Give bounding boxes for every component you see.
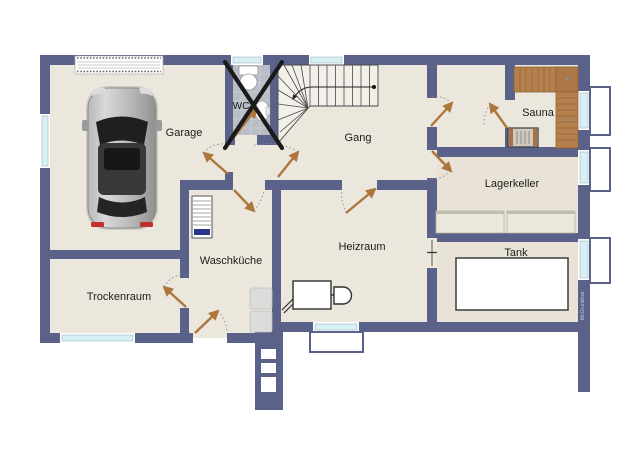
label-heizraum: Heizraum xyxy=(338,241,385,253)
wall-lager-tank xyxy=(437,233,578,242)
wall-bottom-left2 xyxy=(227,333,258,343)
laundry-unit-icon xyxy=(192,196,212,238)
light-well-lagerkeller xyxy=(590,148,610,191)
label-trockenraum: Trockenraum xyxy=(87,291,151,303)
tank-icon xyxy=(456,258,568,310)
label-lagerkeller: Lagerkeller xyxy=(485,178,540,190)
wall-waschkueche-left xyxy=(180,180,189,278)
wall-waschkueche-heizraum xyxy=(272,190,281,332)
light-well-sauna xyxy=(590,87,610,135)
garage-door-icon xyxy=(75,56,163,74)
label-tank: Tank xyxy=(504,247,528,259)
window-lagerkeller-right xyxy=(578,150,590,185)
window-heizraum-bottom xyxy=(313,322,359,332)
watermark-text: McGrundriss xyxy=(580,291,586,320)
exterior-stairs-icon xyxy=(255,332,283,410)
sauna-heater-icon xyxy=(508,128,538,147)
label-gang: Gang xyxy=(345,132,372,144)
car-taillight xyxy=(91,222,104,227)
car-taillight xyxy=(140,222,153,227)
light-well-heizraum xyxy=(310,332,363,352)
wall-gang-heizraum-left xyxy=(265,180,342,190)
wall-outer-left xyxy=(40,55,50,343)
label-garage: Garage xyxy=(166,127,203,139)
floor-plan: Garage WC Gang Sauna Lagerkeller Waschkü… xyxy=(0,0,640,452)
window-stairs-top xyxy=(309,55,344,65)
wall-heizraum-tank xyxy=(427,178,437,238)
window-sauna-right xyxy=(578,91,590,130)
car-icon xyxy=(82,86,162,230)
window-tank-right xyxy=(578,239,590,280)
window-trockenraum-bottom xyxy=(60,333,135,343)
floor-plan-canvas: Garage WC Gang Sauna Lagerkeller Waschkü… xyxy=(0,0,640,452)
label-waschkueche: Waschküche xyxy=(200,255,263,267)
window-garage-left xyxy=(40,114,50,168)
wall-gang-right-1 xyxy=(427,65,437,98)
wall-trockenraum-top xyxy=(45,250,189,259)
wall-sauna-left xyxy=(505,65,515,100)
label-sauna: Sauna xyxy=(522,107,555,119)
label-wc: WC xyxy=(233,101,250,112)
light-well-tank xyxy=(590,238,610,283)
window-wc-top xyxy=(231,55,263,65)
